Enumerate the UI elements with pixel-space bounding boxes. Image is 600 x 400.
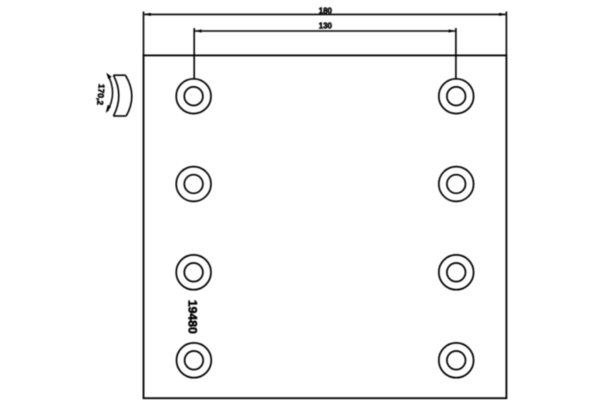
svg-text:130: 130 xyxy=(319,20,333,30)
svg-text:19480: 19480 xyxy=(186,300,200,334)
svg-text:170,2: 170,2 xyxy=(95,83,107,105)
svg-text:180: 180 xyxy=(319,5,333,15)
